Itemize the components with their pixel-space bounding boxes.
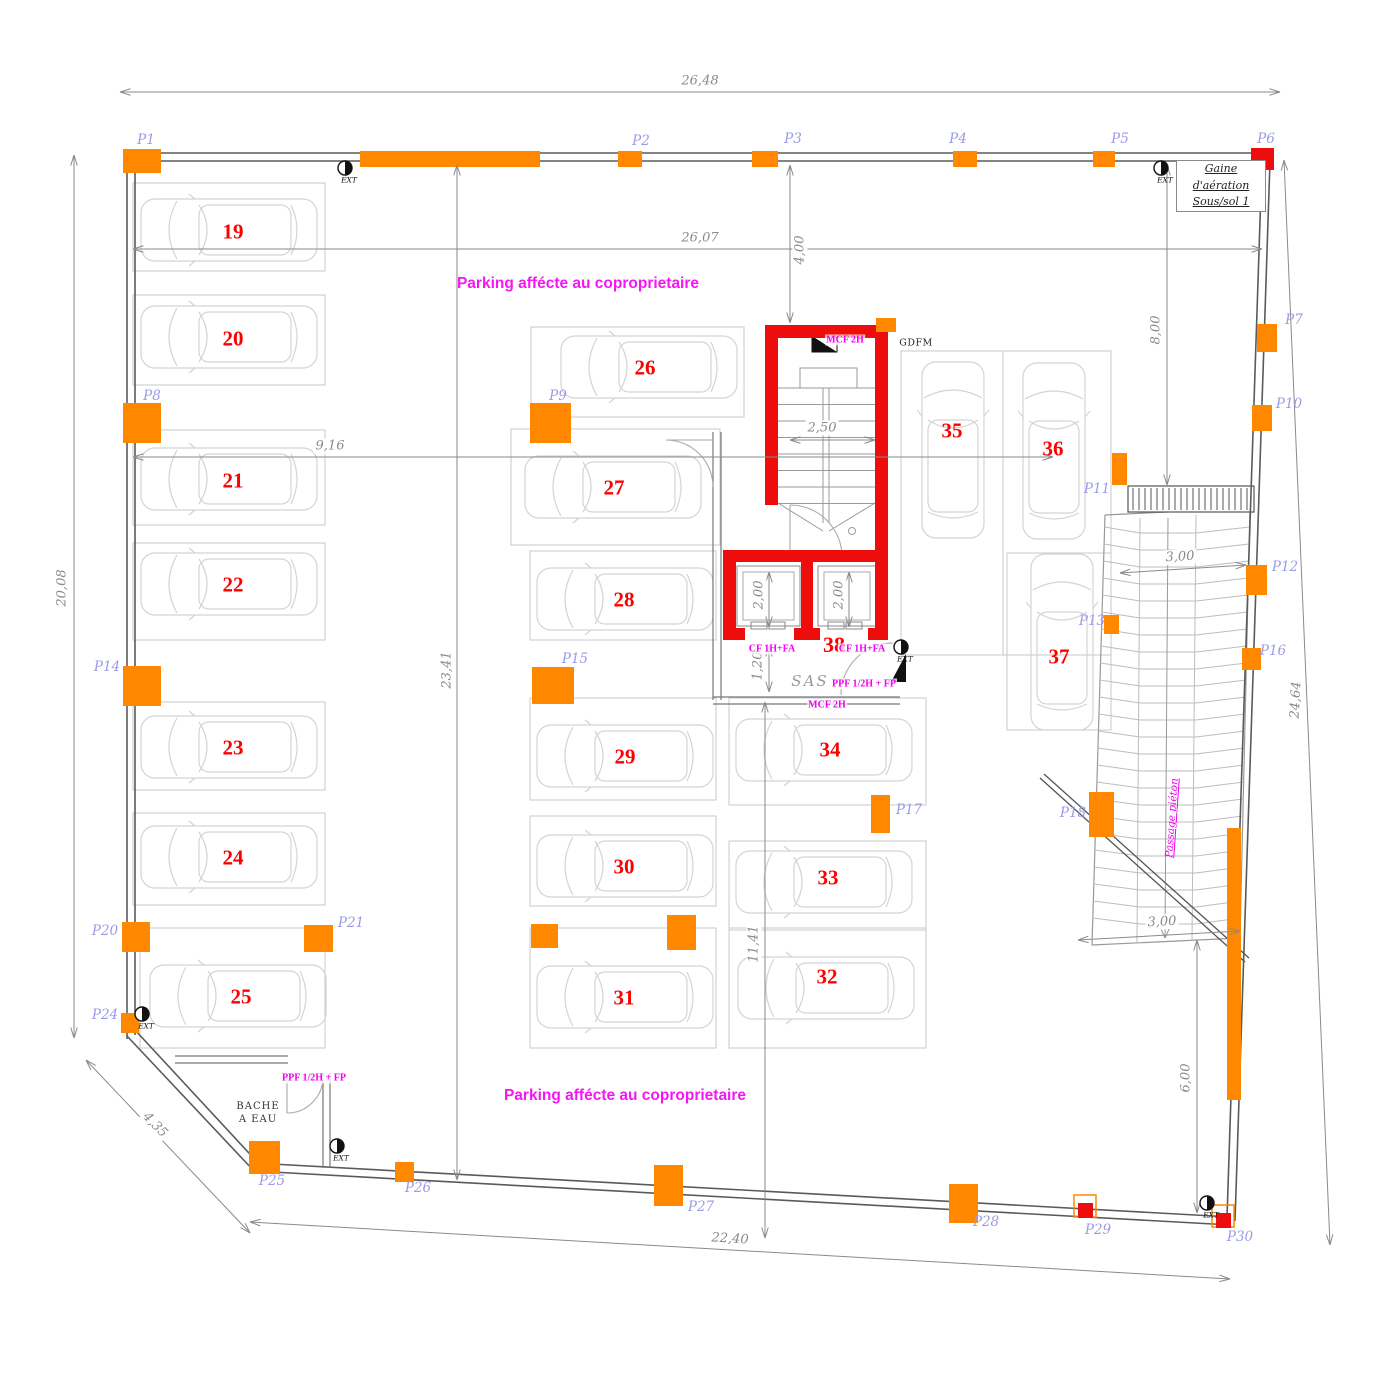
parking-stall-30 — [530, 816, 716, 906]
parking-floor-plan: Gaine d'aération Sous/sol 1 192021222324… — [0, 0, 1400, 1400]
aeration-duct-line2: Sous/sol 1 — [1193, 195, 1250, 208]
car-outline — [561, 331, 737, 403]
pillar-P21 — [304, 925, 333, 952]
pillars — [121, 148, 1277, 1228]
pillar — [876, 318, 896, 332]
aeration-duct-note: Gaine d'aération Sous/sol 1 — [1176, 160, 1266, 212]
parking-stall-27 — [511, 429, 720, 545]
pillar-P30 — [1216, 1213, 1231, 1228]
door-swing — [287, 1077, 323, 1113]
vehicle-ramp — [1040, 508, 1250, 962]
pillar-P20 — [122, 922, 150, 952]
car-outline — [150, 960, 326, 1032]
door-swing — [790, 505, 842, 557]
pillar-P8 — [123, 403, 161, 443]
ext-markers — [135, 161, 1214, 1210]
car-outline — [736, 714, 912, 786]
car-outline — [1026, 554, 1098, 730]
pillar-P13 — [1104, 615, 1119, 634]
car-outline — [736, 846, 912, 918]
fire-wall — [794, 628, 820, 640]
parking-stall-28 — [530, 551, 716, 640]
car-outline — [141, 194, 317, 266]
dimension-lines — [71, 89, 1333, 1282]
car-outline — [141, 548, 317, 620]
parking-stall-34 — [729, 698, 926, 805]
parking-stall-29 — [530, 698, 716, 800]
door-swing — [841, 643, 893, 695]
walls — [125, 153, 1270, 1225]
car-outline — [917, 362, 989, 538]
pillar-P7 — [1257, 324, 1277, 352]
car-outline — [141, 821, 317, 893]
pillar-P12 — [1246, 565, 1267, 595]
parking-stall-24 — [133, 813, 325, 905]
pillar-P27 — [654, 1165, 683, 1206]
fire-wall — [765, 325, 888, 338]
pillar-P4 — [953, 151, 977, 167]
pillar — [1227, 828, 1241, 1100]
parking-stall-36 — [1003, 351, 1111, 655]
parking-stall-33 — [729, 841, 926, 930]
parking-stall-35 — [901, 351, 1003, 655]
fire-wall — [723, 628, 745, 640]
pillar — [531, 924, 558, 948]
fire-wall — [765, 338, 778, 505]
car-outline — [537, 830, 713, 902]
pillar-P15 — [532, 667, 574, 704]
parking-stall-20 — [133, 295, 325, 385]
car-outline — [525, 451, 701, 523]
pillar-P2 — [618, 151, 642, 167]
exit-triangle-icon — [891, 654, 906, 682]
pillar-P29 — [1078, 1203, 1093, 1218]
pillar — [667, 915, 696, 950]
pillar-P18 — [1089, 792, 1114, 837]
parking-stall-23 — [133, 702, 325, 790]
car-outline — [738, 952, 914, 1024]
ventilation-grille — [1128, 486, 1254, 512]
pillar-P17 — [871, 795, 890, 833]
car-outline — [537, 961, 713, 1033]
car-outline — [537, 563, 713, 635]
car-outlines — [141, 194, 1098, 1033]
fire-wall — [875, 338, 888, 640]
pillar-P1 — [123, 149, 161, 173]
car-outline — [537, 720, 713, 792]
car-outline — [141, 443, 317, 515]
parking-stall-32 — [729, 928, 926, 1048]
parking-stall-21 — [133, 430, 325, 525]
fire-wall — [723, 550, 876, 562]
parking-stall-19 — [133, 183, 325, 271]
car-outline — [141, 711, 317, 783]
car-outline — [141, 301, 317, 373]
pillar-P5 — [1093, 151, 1115, 167]
pillar-P16 — [1242, 648, 1261, 670]
door-swing — [666, 440, 713, 487]
parking-stall-25 — [140, 928, 325, 1048]
pillar-P25 — [249, 1141, 280, 1174]
pillar-P3 — [752, 151, 778, 167]
pillar-P9 — [530, 403, 571, 443]
fire-wall — [868, 628, 888, 640]
pillar — [360, 151, 540, 167]
pillar-P26 — [395, 1162, 414, 1182]
pillar-P14 — [123, 666, 161, 706]
aeration-duct-line1: Gaine d'aération — [1193, 162, 1250, 192]
car-outline — [1018, 363, 1090, 539]
pillar-P10 — [1252, 405, 1272, 431]
pillar-P11 — [1112, 453, 1127, 485]
elevator-shaft-right — [818, 566, 876, 626]
pillar-P28 — [949, 1184, 978, 1223]
